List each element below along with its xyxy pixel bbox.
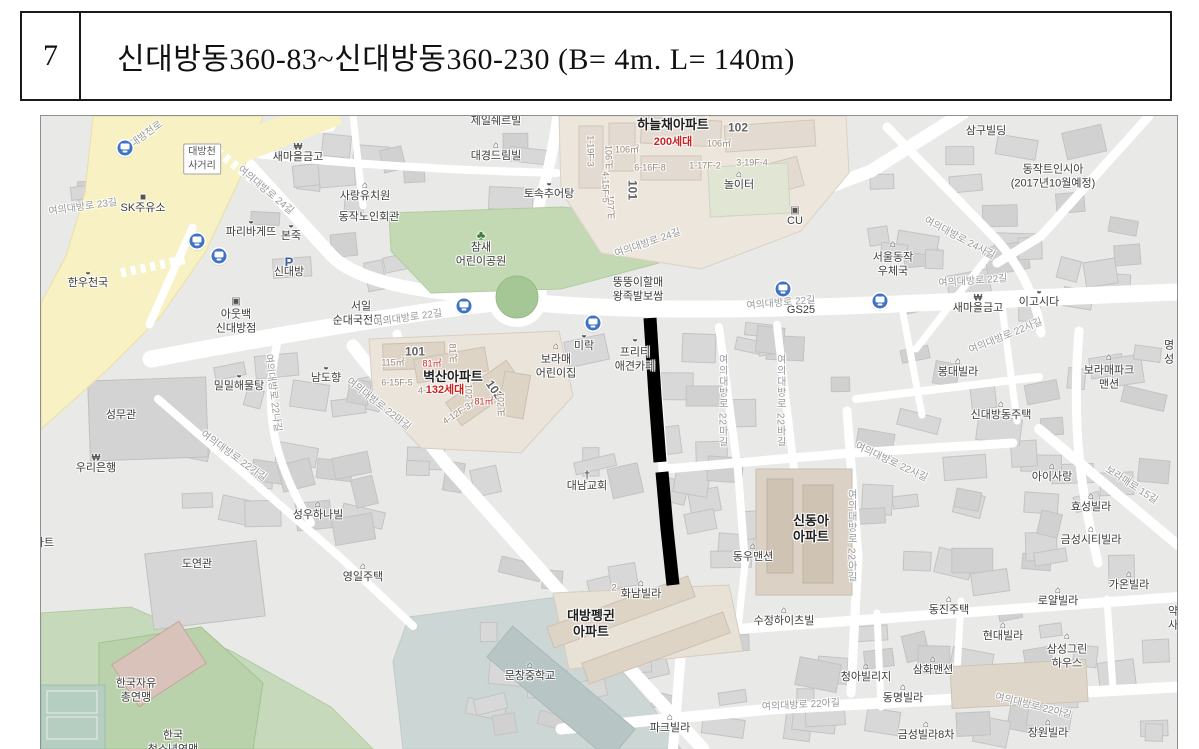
map-viewport: 대방천로대방천 사거리₩새마을금고■SK주유소여의대방로 23길◒파리바게뜨◒본…	[40, 115, 1178, 749]
bus-stop-icon	[457, 299, 472, 314]
bus-stop-icon	[212, 249, 227, 264]
bus-stop-icon	[586, 316, 601, 331]
row-number-cell: 7	[22, 13, 81, 99]
bus-stop-icon	[190, 234, 205, 249]
bus-stop-icon	[873, 294, 888, 309]
map-canvas	[41, 116, 1177, 749]
section-title: 신대방동360-83~신대방동360-230 (B= 4m. L= 140m)	[81, 13, 1170, 99]
header-table-row: 7 신대방동360-83~신대방동360-230 (B= 4m. L= 140m…	[20, 11, 1172, 101]
bus-stop-icon	[776, 282, 791, 297]
bus-stop-icon	[118, 141, 133, 156]
document-page: { "header": { "row_no": "7", "title": "신…	[0, 0, 1199, 748]
